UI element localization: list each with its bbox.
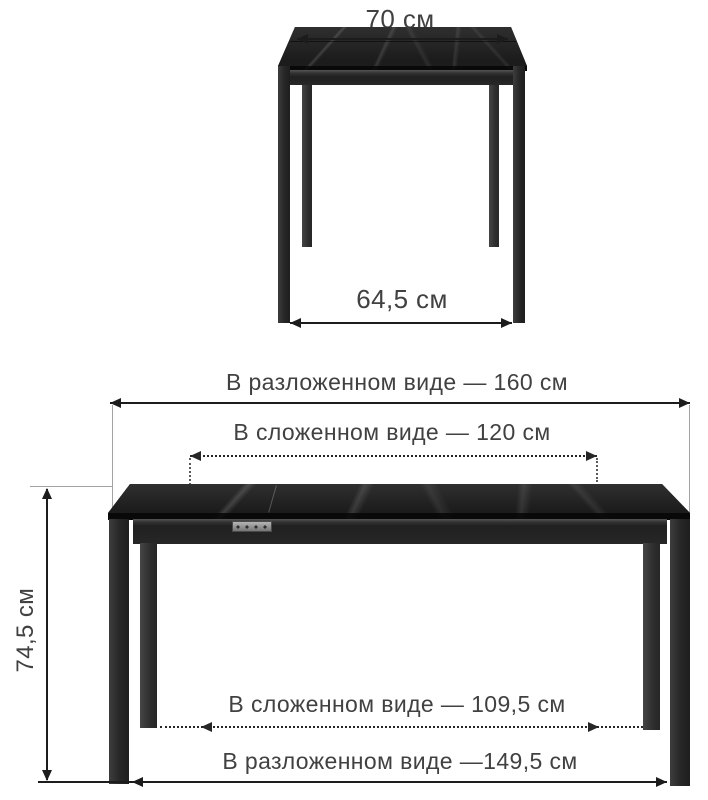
arrowhead-left-icon [290,318,301,328]
top-depth-dimension-line [290,322,512,324]
arrowhead-left-icon [201,722,212,732]
extended-width-dimension-line [110,402,690,404]
end-view-tabletop [278,27,527,71]
extended-leg-span-label: В разложенном виде —149,5 см [150,749,650,774]
front-view-leg-front-left [109,519,129,784]
front-view-tabletop [108,484,690,520]
front-view-apron [133,519,667,544]
end-view-leg-front-right [513,66,525,323]
folded-width-dimension-line [190,455,597,457]
arrowhead-left-icon [132,777,143,787]
top-depth-label: 64,5 см [302,285,502,314]
arrowhead-right-icon [497,34,508,44]
front-view-leg-front-right [670,519,690,786]
end-view-leg-back-left [302,85,312,247]
folded-leg-span-label: В сложенном виде — 109,5 см [147,692,647,717]
height-dimension-line [46,489,48,780]
arrowhead-right-icon [501,318,512,328]
end-view-leg-front-left [278,66,290,323]
arrowhead-left-icon [297,34,308,44]
arrowhead-down-icon [42,770,52,781]
product-dimensions-diagram: 70 см 64,5 см В разложенном виде — 160 с… [0,0,708,800]
extension-line-left [112,405,113,508]
extension-latch [232,521,272,532]
arrowhead-right-icon [656,777,667,787]
end-view-tabletop-seam [290,41,516,42]
folded-leg-span-dimension-line [160,726,643,728]
extended-width-label: В разложенном виде — 160 см [147,370,647,395]
arrowhead-up-icon [42,488,52,499]
latch-screws [233,522,271,531]
extended-leg-span-dimension-line [38,781,667,783]
top-width-dimension-line [297,38,508,40]
dotted-extension-right [596,458,598,482]
folded-width-label: В сложенном виде — 120 см [142,420,642,445]
end-view-leg-back-right [489,85,499,247]
height-label: 74,5 см [13,570,39,690]
arrowhead-right-icon [588,722,599,732]
height-extension-line-top [30,486,112,487]
end-view-apron [288,70,518,85]
arrowhead-left-icon [190,451,201,461]
dotted-extension-left [189,458,191,485]
extension-line-right [689,405,690,513]
